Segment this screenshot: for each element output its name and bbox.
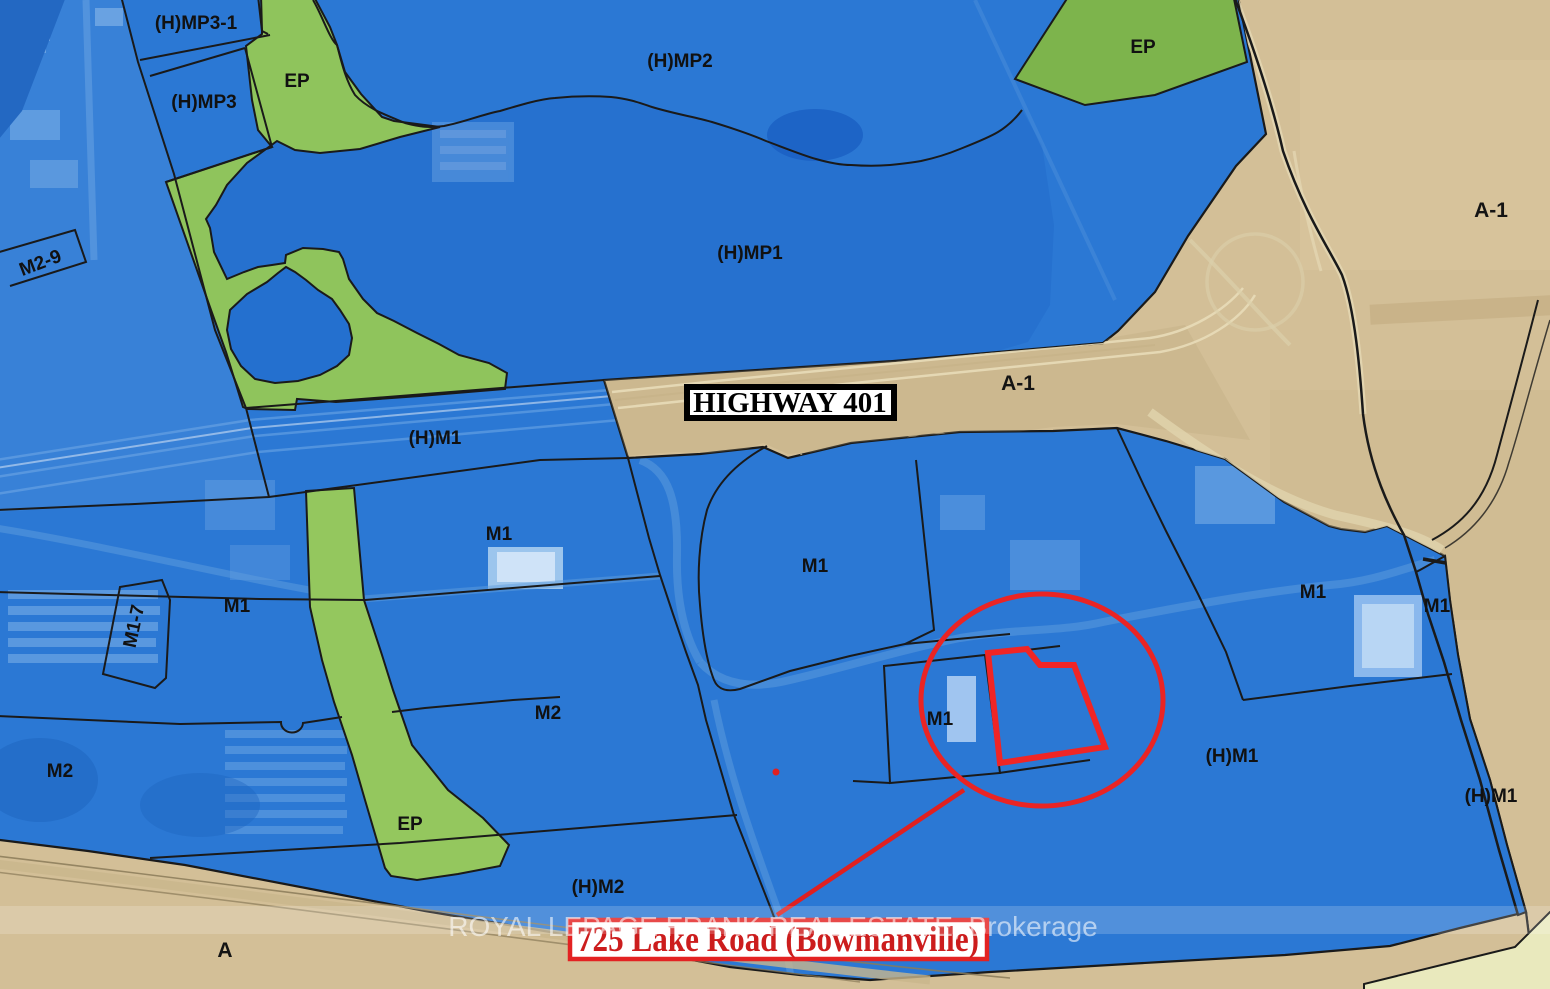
svg-text:M2: M2	[535, 703, 561, 724]
svg-text:(H)MP3-1: (H)MP3-1	[155, 13, 238, 34]
svg-text:M1: M1	[224, 596, 251, 617]
svg-text:M1: M1	[486, 524, 513, 545]
svg-text:ROYAL LEPAGE FRANK REAL ESTATE: ROYAL LEPAGE FRANK REAL ESTATE, Brokerag…	[448, 911, 1097, 942]
svg-text:M1: M1	[802, 556, 829, 577]
svg-text:M1: M1	[927, 709, 954, 730]
svg-text:M1: M1	[1424, 596, 1451, 617]
svg-text:A: A	[217, 939, 232, 962]
svg-text:EP: EP	[1130, 37, 1156, 58]
svg-text:A-1: A-1	[1474, 199, 1508, 222]
svg-text:HIGHWAY 401: HIGHWAY 401	[693, 387, 887, 419]
svg-text:(H)M1: (H)M1	[409, 428, 462, 449]
svg-text:(H)MP2: (H)MP2	[647, 51, 712, 72]
svg-text:M1: M1	[1300, 582, 1327, 603]
svg-text:A-1: A-1	[1001, 372, 1035, 395]
svg-text:EP: EP	[397, 814, 423, 835]
svg-text:(H)M1: (H)M1	[1465, 786, 1518, 807]
svg-text:(H)MP3: (H)MP3	[171, 92, 236, 113]
svg-text:(H)M2: (H)M2	[572, 877, 625, 898]
svg-text:M2: M2	[47, 761, 73, 782]
svg-text:EP: EP	[284, 71, 310, 92]
svg-text:(H)M1: (H)M1	[1206, 746, 1259, 767]
svg-text:(H)MP1: (H)MP1	[717, 243, 783, 264]
